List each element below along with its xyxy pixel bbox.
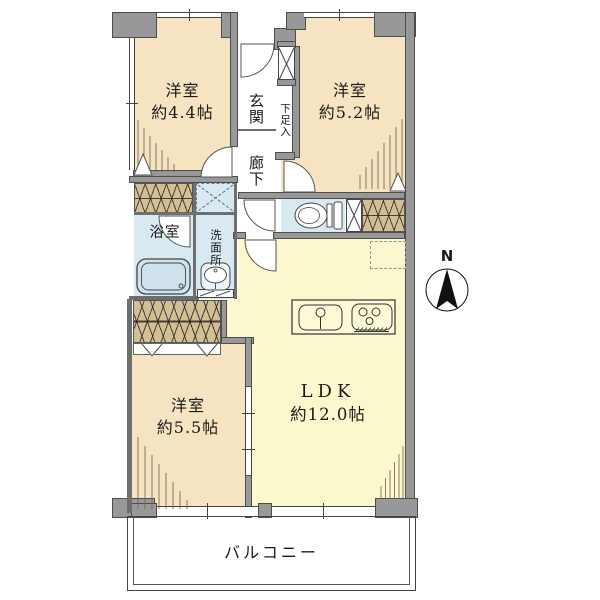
floorplan: 洋室 約4.4帖 洋室 約5.2帖 洋室 約5.5帖 LDK 約12.0帖 玄関… <box>0 0 600 600</box>
washroom-door-strip <box>197 289 234 298</box>
bedroom3-size: 約5.5帖 <box>132 417 244 439</box>
wall-bath-south <box>129 296 199 300</box>
laundry-space <box>196 183 235 214</box>
entrance-storage-box <box>278 46 295 82</box>
bathroom-label: 浴室 <box>137 224 193 244</box>
washroom-label: 洗面所 <box>207 217 224 279</box>
shoebox-label: 下足入 <box>277 88 293 152</box>
wall-shoebox-cap <box>275 152 295 160</box>
wall-east-outer <box>405 12 415 518</box>
toilet-door-arc <box>244 200 275 231</box>
bedroom1-label: 洋室 約4.4帖 <box>134 80 231 123</box>
wall-bath-washroom <box>193 183 196 299</box>
bedroom3-label: 洋室 約5.5帖 <box>132 395 244 438</box>
wall-bath-north <box>134 212 235 215</box>
bedroom2-floor-doorstrip <box>281 158 296 193</box>
wall-storage-north <box>129 176 238 183</box>
closet-bedroom3 <box>133 300 221 343</box>
wall-entrance-step2 <box>286 12 306 30</box>
bedroom2-label: 洋室 約5.2帖 <box>294 80 406 123</box>
wall-ldk-north-east <box>273 232 405 239</box>
closet-bedroom3-door-band <box>133 343 221 355</box>
closet-bathside <box>134 183 193 214</box>
compass-rose-icon <box>424 265 470 315</box>
bedroom3-name: 洋室 <box>132 395 244 417</box>
closet-hall <box>362 199 405 232</box>
wall-pillar-topleft <box>112 12 157 38</box>
window-tick <box>339 9 340 21</box>
balcony-label: バルコニー <box>128 542 415 564</box>
refrigerator-space <box>370 241 406 269</box>
hallway-label: 廊下 <box>245 147 267 195</box>
window-tick <box>189 9 190 21</box>
ldk-label: LDK 約12.0帖 <box>250 380 406 427</box>
toilet-floor <box>281 199 345 232</box>
hall-storage-box <box>346 199 362 232</box>
compass-label: N <box>424 247 470 265</box>
wall-pillar-bottomright <box>375 498 418 518</box>
compass: N <box>424 247 470 327</box>
ldk-size: 約12.0帖 <box>250 404 406 426</box>
window-tick <box>242 449 255 450</box>
entrance-label: 玄関 <box>243 85 267 133</box>
bedroom2-name: 洋室 <box>294 80 406 102</box>
wall-bedroom1-east <box>230 12 238 147</box>
ldk-name: LDK <box>250 380 406 404</box>
wall-corridor-west-thin <box>234 183 237 299</box>
entrance-door-arc <box>241 44 274 77</box>
bedroom1-name: 洋室 <box>134 80 231 102</box>
bedroom2-size: 約5.2帖 <box>294 102 406 124</box>
bedroom1-size: 約4.4帖 <box>134 102 231 124</box>
